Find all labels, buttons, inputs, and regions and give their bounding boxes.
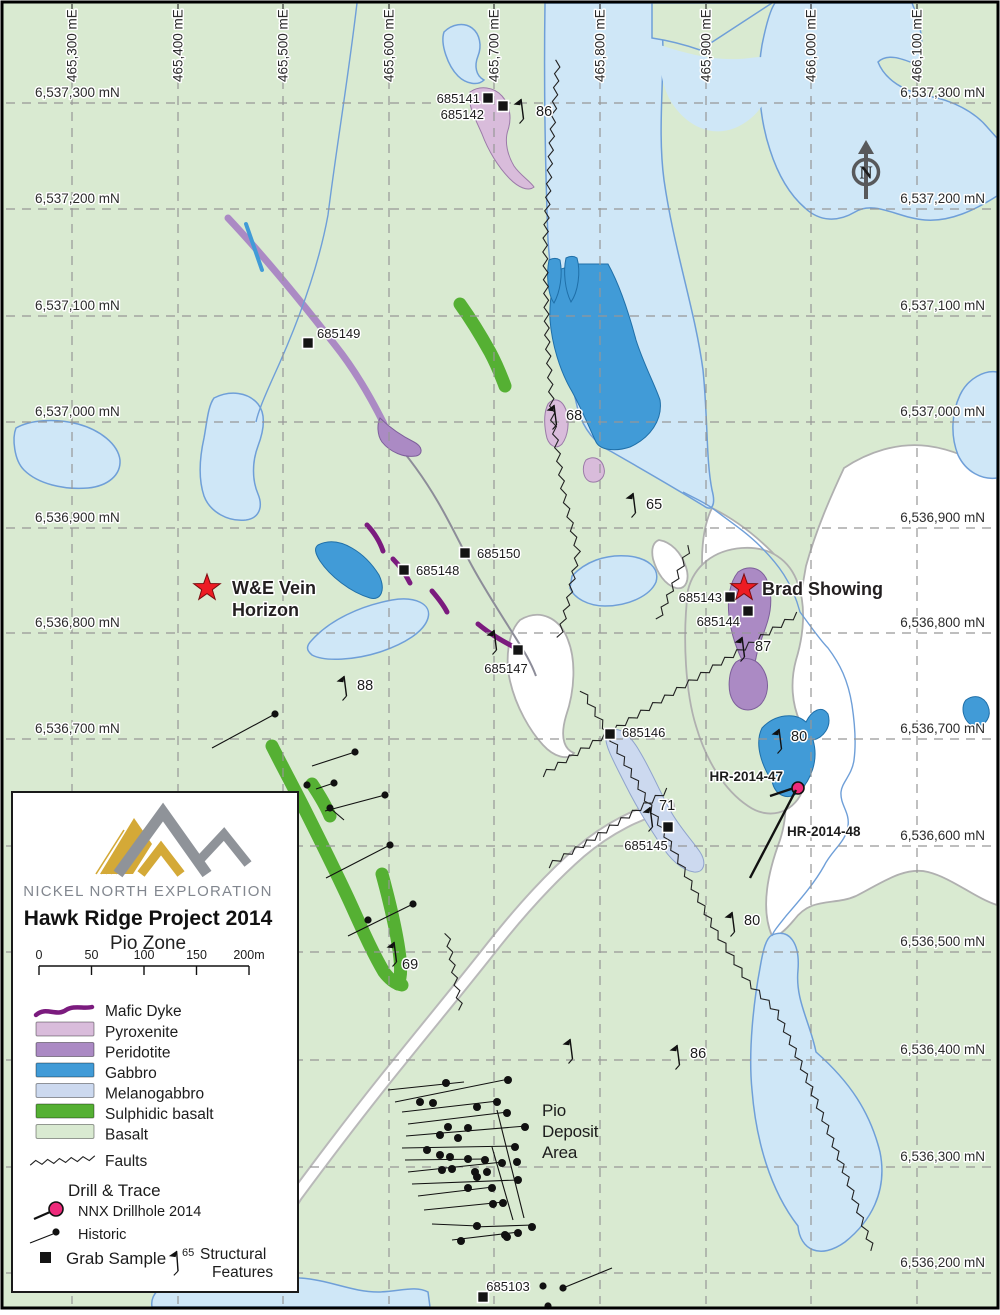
grab-sample-marker (483, 93, 494, 104)
map-stage: 465,300 mE465,400 mE465,500 mE465,600 mE… (0, 0, 1000, 1310)
grab-sample-label: 685148 (416, 563, 459, 578)
structural-value-label: 69 (402, 957, 418, 973)
legend-item-label: Faults (105, 1153, 147, 1170)
legend-box: NICKEL NORTH EXPLORATION Hawk Ridge Proj… (12, 792, 298, 1292)
grab-sample-label: 685144 (697, 614, 740, 629)
grid-northing-label-right: 6,536,700 mN (900, 721, 985, 736)
pio-label-3: Area (542, 1143, 578, 1162)
historic-collar (330, 779, 337, 786)
grab-sample-label: 685150 (477, 546, 520, 561)
historic-collar (483, 1168, 491, 1176)
historic-collar (454, 1134, 462, 1142)
historic-collar (481, 1156, 489, 1164)
historic-collar (528, 1223, 536, 1231)
historic-collar (271, 710, 278, 717)
grid-northing-label-right: 6,536,400 mN (900, 1042, 985, 1057)
legend-grab-label: Grab Sample (66, 1249, 166, 1268)
scale-bar-tick-label: 50 (85, 948, 99, 962)
pio-label-1: Pio (542, 1101, 566, 1120)
historic-collar (446, 1153, 454, 1161)
historic-collar (326, 804, 333, 811)
legend-swatch (36, 1125, 94, 1139)
historic-collar (429, 1099, 437, 1107)
brad-label: Brad Showing (762, 579, 883, 599)
grab-sample-label: 685142 (441, 107, 484, 122)
legend-item-label: Peridotite (105, 1045, 170, 1062)
historic-collar (438, 1166, 446, 1174)
geology-map: 465,300 mE465,400 mE465,500 mE465,600 mE… (0, 0, 1000, 1310)
historic-collar (303, 781, 310, 788)
historic-collar (381, 791, 388, 798)
historic-collar (351, 748, 358, 755)
scale-bar-tick-label: 0 (36, 948, 43, 962)
structural-value-label: 71 (659, 798, 675, 814)
grab-sample-marker (605, 729, 616, 740)
historic-collar (464, 1124, 472, 1132)
historic-collar (436, 1131, 444, 1139)
historic-collar (559, 1284, 566, 1291)
legend-historic-collar-icon (52, 1228, 59, 1235)
historic-collar (464, 1184, 472, 1192)
grid-northing-label-right: 6,537,100 mN (900, 298, 985, 313)
grab-sample-marker (725, 592, 736, 603)
legend-swatch (36, 1084, 94, 1098)
grid-northing-label-right: 6,536,200 mN (900, 1255, 985, 1270)
nnx-drillhole-label: HR-2014-48 (787, 824, 861, 839)
grid-northing-label-left: 6,537,200 mN (35, 191, 120, 206)
historic-collar (513, 1158, 521, 1166)
grid-northing-label-right: 6,537,000 mN (900, 404, 985, 419)
structural-value-label: 80 (744, 913, 760, 929)
historic-collar (473, 1222, 481, 1230)
grid-easting-label: 465,800 mE (593, 9, 608, 82)
historic-collar (514, 1176, 522, 1184)
structural-value-label: 88 (357, 678, 373, 694)
grab-sample-marker (513, 645, 524, 656)
legend-swatch (36, 1043, 94, 1057)
grab-sample-label: 685145 (624, 838, 667, 853)
legend-structural-label-1: Structural (200, 1246, 266, 1263)
pio-label-2: Deposit (542, 1122, 599, 1141)
historic-collar (514, 1229, 522, 1237)
scale-bar-tick-label: 200m (233, 948, 264, 962)
grid-easting-label: 465,900 mE (699, 9, 714, 82)
structural-value-label: 80 (791, 729, 807, 745)
legend-item-label: Pyroxenite (105, 1024, 178, 1041)
historic-collar (488, 1184, 496, 1192)
legend-nnx-collar-icon (49, 1202, 63, 1216)
grid-northing-label-left: 6,537,000 mN (35, 404, 120, 419)
grid-easting-label: 465,500 mE (276, 9, 291, 82)
historic-collar (473, 1173, 481, 1181)
grid-easting-label: 465,600 mE (382, 9, 397, 82)
legend-item-label: Mafic Dyke (105, 1003, 182, 1020)
map-title: Hawk Ridge Project 2014 (24, 907, 273, 930)
grid-northing-label-left: 6,537,100 mN (35, 298, 120, 313)
grid-northing-label-right: 6,537,200 mN (900, 191, 985, 206)
historic-collar (489, 1200, 497, 1208)
grid-northing-label-right: 6,536,300 mN (900, 1149, 985, 1164)
historic-collar (423, 1146, 431, 1154)
historic-collar (444, 1123, 452, 1131)
grab-sample-marker (743, 606, 754, 617)
we-vein-label-2: Horizon (232, 600, 299, 620)
historic-collar (386, 841, 393, 848)
legend-item-label: Basalt (105, 1127, 149, 1144)
grab-sample-marker (399, 565, 410, 576)
north-letter: N (860, 163, 873, 183)
historic-collar (409, 900, 416, 907)
historic-collar (521, 1123, 529, 1131)
historic-collar (499, 1199, 507, 1207)
grab-sample-label: 685146 (622, 725, 665, 740)
legend-swatch (36, 1104, 94, 1118)
historic-collar (501, 1231, 509, 1239)
legend-structural-value: 65 (182, 1247, 194, 1259)
historic-collar (448, 1165, 456, 1173)
legend-nnx-label: NNX Drillhole 2014 (78, 1204, 201, 1220)
structural-value-label: 86 (536, 104, 552, 120)
grab-sample-label: 685141 (437, 91, 480, 106)
legend-item-label: Gabbro (105, 1065, 157, 1082)
grid-easting-label: 466,000 mE (804, 9, 819, 82)
grid-easting-label: 466,100 mE (910, 9, 925, 82)
grid-northing-label-right: 6,536,600 mN (900, 828, 985, 843)
structural-value-label: 68 (566, 408, 582, 424)
historic-collar (436, 1151, 444, 1159)
historic-collar (364, 916, 371, 923)
structural-value-label: 87 (755, 639, 771, 655)
grab-sample-marker (303, 338, 314, 349)
grab-sample-marker (663, 822, 674, 833)
historic-collar (416, 1098, 424, 1106)
grab-sample-label: 685147 (484, 661, 527, 676)
grid-easting-label: 465,300 mE (65, 9, 80, 82)
grab-sample-marker (460, 548, 471, 559)
structural-value-label: 65 (646, 497, 662, 513)
we-vein-label-1: W&E Vein (232, 578, 316, 598)
legend-historic-label: Historic (78, 1227, 126, 1243)
grab-sample-label: 685143 (679, 590, 722, 605)
legend-item-label: Melanogabbro (105, 1086, 204, 1103)
historic-collar (498, 1159, 506, 1167)
grid-northing-label-left: 6,536,900 mN (35, 510, 120, 525)
historic-collar (457, 1237, 465, 1245)
nnx-drillhole-label: HR-2014-47 (709, 769, 783, 784)
grid-northing-label-right: 6,536,800 mN (900, 615, 985, 630)
historic-collar (503, 1109, 511, 1117)
grab-sample-label: 685103 (486, 1279, 529, 1294)
legend-swatch (36, 1063, 94, 1077)
historic-collar (442, 1079, 450, 1087)
legend-item-label: Sulphidic basalt (105, 1106, 214, 1123)
legend-structural-label-2: Features (212, 1264, 273, 1281)
grid-northing-label-right: 6,536,500 mN (900, 934, 985, 949)
historic-collar (473, 1103, 481, 1111)
drill-trace-heading: Drill & Trace (68, 1181, 161, 1200)
grid-northing-label-right: 6,537,300 mN (900, 85, 985, 100)
historic-collar (493, 1098, 501, 1106)
grab-sample-label: 685149 (317, 326, 360, 341)
legend-grab-sample-icon (40, 1252, 51, 1263)
company-name: NICKEL NORTH EXPLORATION (23, 883, 272, 900)
grid-easting-label: 465,400 mE (171, 9, 186, 82)
grid-easting-label: 465,700 mE (487, 9, 502, 82)
grab-sample-marker (498, 101, 509, 112)
legend-swatch (36, 1022, 94, 1036)
historic-collar (539, 1282, 546, 1289)
scale-bar-tick-label: 100 (134, 948, 155, 962)
historic-collar (504, 1076, 512, 1084)
grid-northing-label-left: 6,536,800 mN (35, 615, 120, 630)
historic-collar (511, 1143, 519, 1151)
historic-collar (464, 1155, 472, 1163)
grid-northing-label-left: 6,536,700 mN (35, 721, 120, 736)
grid-northing-label-left: 6,537,300 mN (35, 85, 120, 100)
grid-northing-label-right: 6,536,900 mN (900, 510, 985, 525)
structural-value-label: 86 (690, 1046, 706, 1062)
scale-bar-tick-label: 150 (186, 948, 207, 962)
